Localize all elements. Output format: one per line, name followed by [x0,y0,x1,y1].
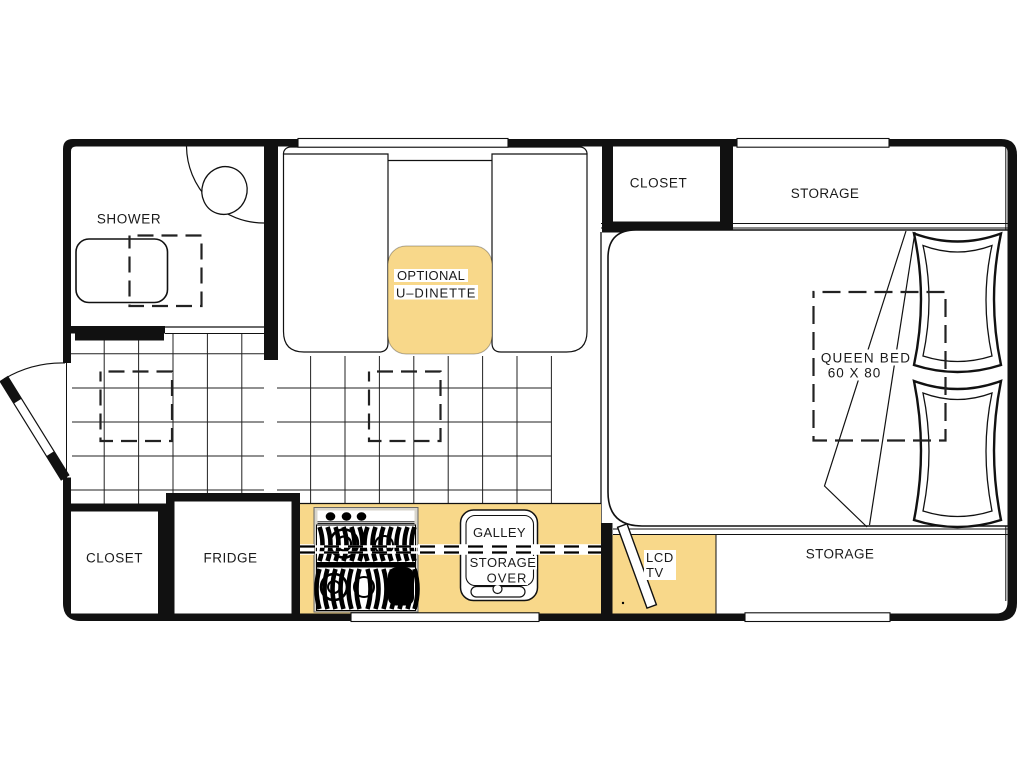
svg-text:OVER: OVER [487,571,528,586]
svg-text:STORAGE: STORAGE [791,186,860,201]
svg-text:QUEEN BED: QUEEN BED [821,351,911,366]
svg-text:OPTIONAL: OPTIONAL [397,268,465,283]
svg-text:TV: TV [646,565,664,580]
svg-text:60 X 80: 60 X 80 [828,366,882,381]
svg-text:STORAGE: STORAGE [806,547,875,562]
svg-text:U–DINETTE: U–DINETTE [396,286,476,301]
svg-text:CLOSET: CLOSET [630,176,688,191]
svg-text:SHOWER: SHOWER [97,212,161,227]
svg-text:CLOSET: CLOSET [86,551,143,566]
svg-text:STORAGE: STORAGE [470,555,537,570]
svg-text:GALLEY: GALLEY [473,525,526,540]
svg-text:FRIDGE: FRIDGE [203,551,257,566]
svg-text:LCD: LCD [646,550,674,565]
